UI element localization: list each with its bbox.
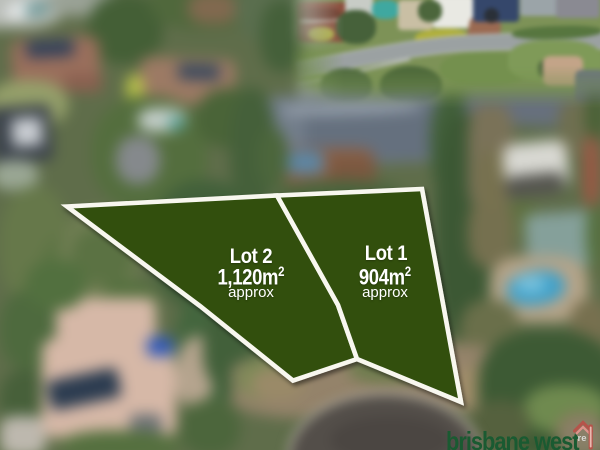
svg-text:re: re (578, 433, 587, 444)
